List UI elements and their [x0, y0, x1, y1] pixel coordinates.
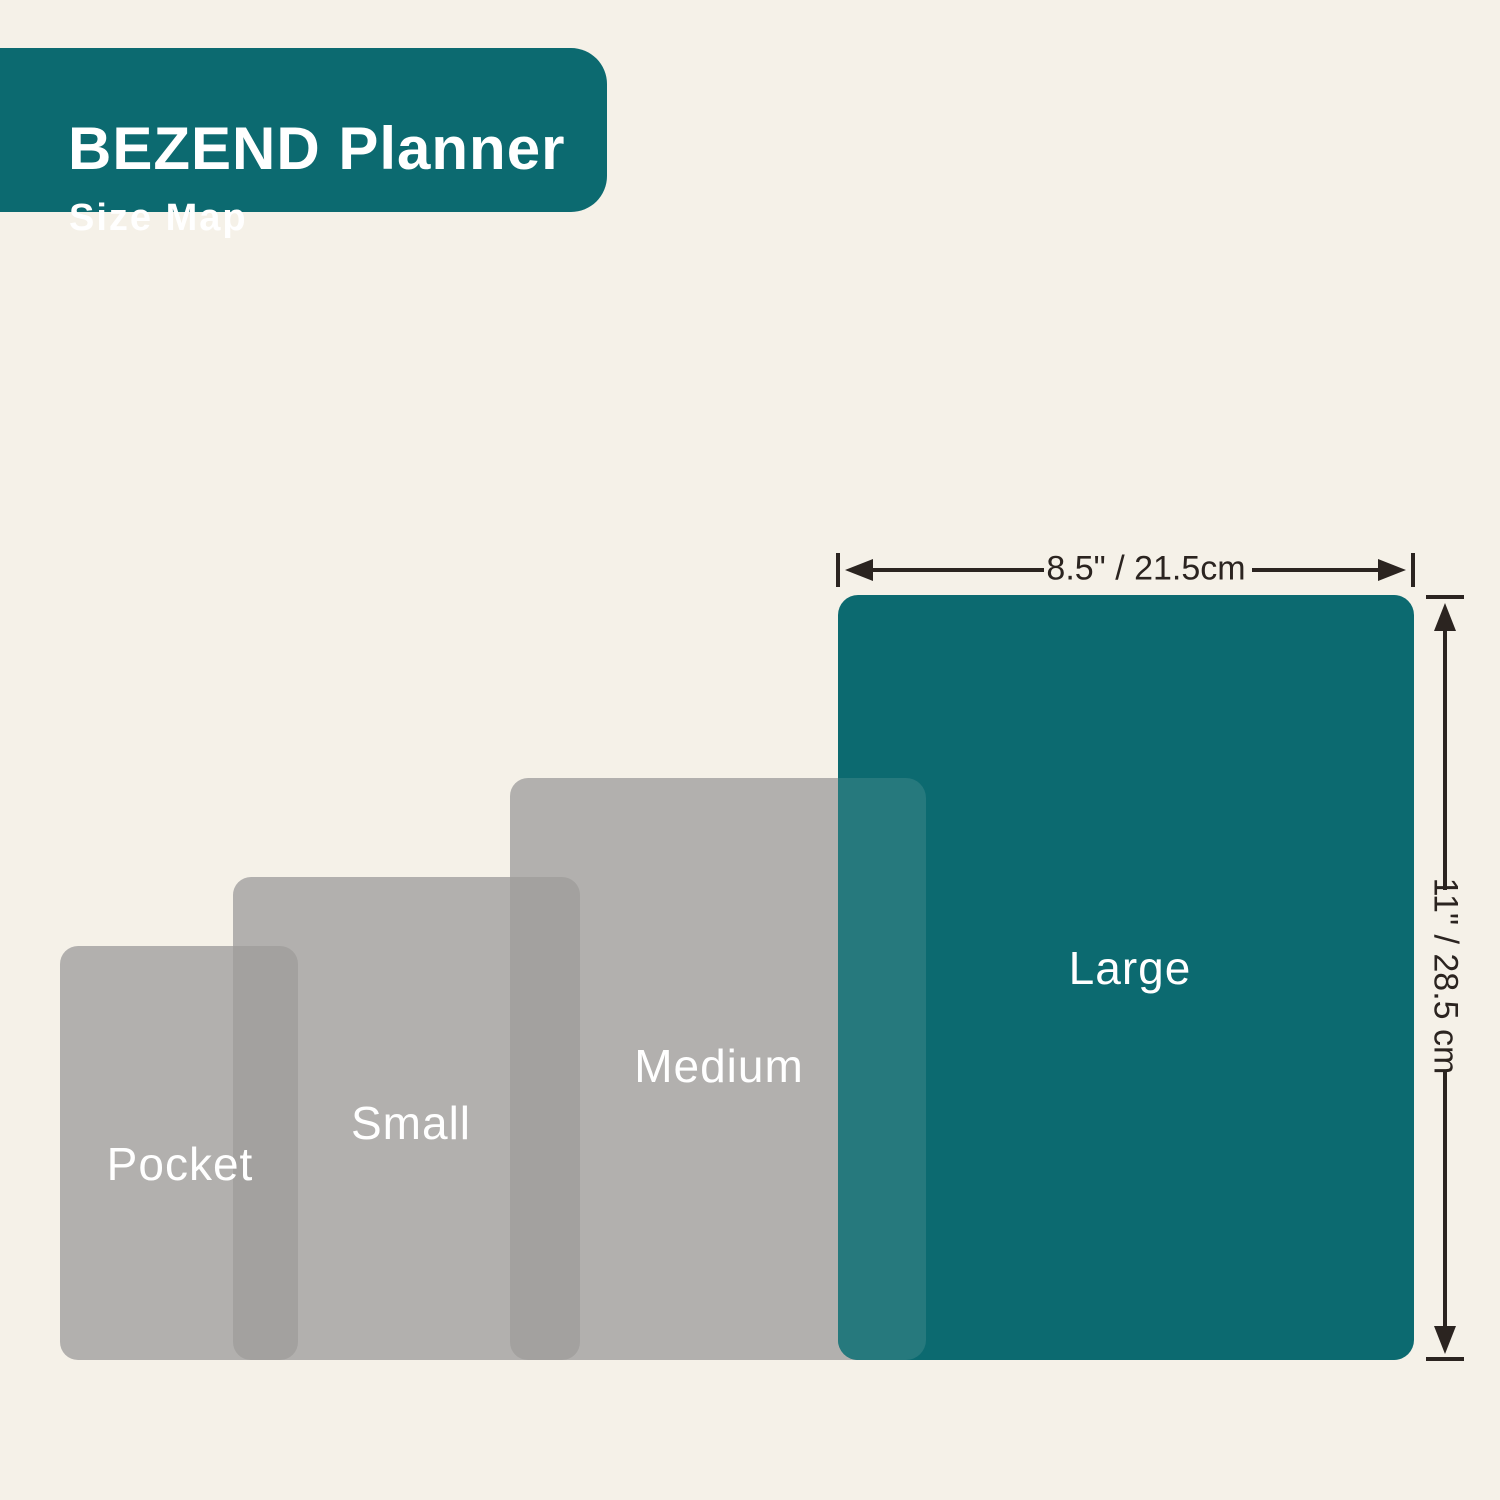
height-dim-line-top: [1443, 627, 1447, 890]
height-dim-tick-top: [1426, 595, 1464, 599]
height-dim-line-bottom: [1443, 1072, 1447, 1330]
height-dim-label: 11" / 28.5 cm: [1426, 878, 1465, 1075]
width-dim-line-right: [1252, 568, 1384, 572]
overlap-medium-large: [838, 778, 926, 1360]
height-dim-tick-bottom: [1426, 1357, 1464, 1361]
size-label-medium: Medium: [634, 1039, 804, 1093]
width-dim-tick-left: [836, 553, 840, 587]
size-map-canvas: BEZEND Planner Size Map Pocket Small Med…: [0, 0, 1500, 1500]
width-dim-arrowhead-right: [1378, 559, 1406, 581]
height-dim-arrowhead-down: [1434, 1326, 1456, 1354]
width-dim-tick-right: [1411, 553, 1415, 587]
size-label-small: Small: [351, 1096, 471, 1150]
brand-subtitle: Size Map: [69, 198, 248, 238]
size-label-large: Large: [1069, 941, 1192, 995]
width-dim-label: 8.5" / 21.5cm: [1046, 550, 1245, 589]
overlap-small-medium: [510, 877, 580, 1360]
brand-title: BEZEND Planner: [68, 118, 565, 180]
brand-banner: BEZEND Planner Size Map: [0, 48, 607, 212]
width-dim-line-left: [866, 568, 1044, 572]
size-label-pocket: Pocket: [107, 1137, 254, 1191]
